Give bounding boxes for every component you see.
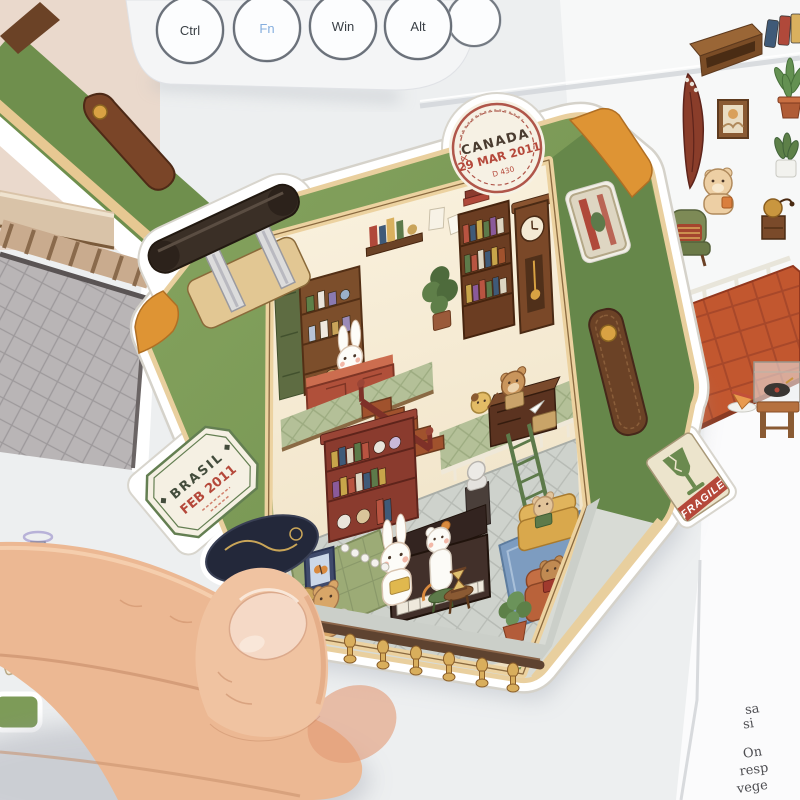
key-label: Win xyxy=(332,19,354,34)
key-ctrl: Ctrl xyxy=(156,0,224,64)
thumb xyxy=(195,568,328,741)
photo-of-suitcase-sticker: sa si On resp vege xyxy=(0,0,800,800)
green-sticker-partial xyxy=(0,694,40,730)
key-fn: Fn xyxy=(233,0,301,62)
key-label: Ctrl xyxy=(180,23,200,38)
key-extra xyxy=(447,0,501,47)
paper-fragment: On xyxy=(742,744,764,762)
wall-note xyxy=(429,207,445,230)
picture-frame-sticker xyxy=(718,100,748,138)
key-label: Fn xyxy=(259,21,274,36)
key-label: Alt xyxy=(410,19,426,34)
record-player-sticker xyxy=(754,362,800,438)
bear-with-cup-sticker xyxy=(704,168,733,214)
paper-fragment: si xyxy=(742,716,755,732)
